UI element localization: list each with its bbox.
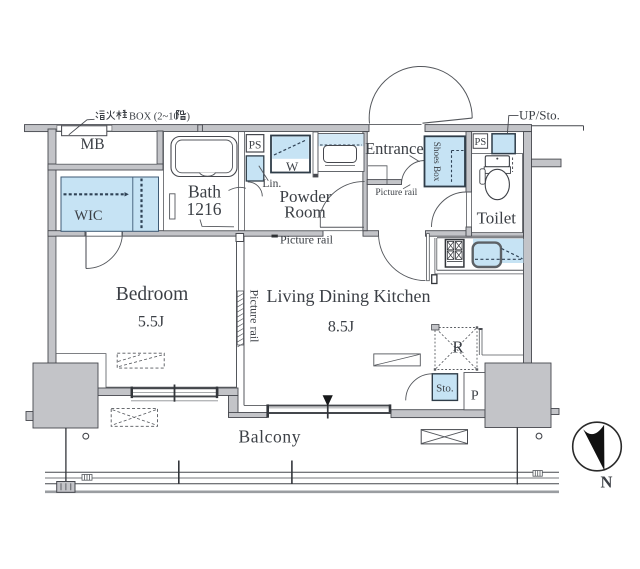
svg-text:1216: 1216	[187, 199, 222, 219]
svg-text:Sto.: Sto.	[436, 383, 454, 395]
svg-text:Picture rail: Picture rail	[280, 233, 334, 247]
svg-text:Shoes Box: Shoes Box	[432, 142, 442, 182]
svg-text:Picture rail: Picture rail	[375, 188, 417, 198]
svg-text:PS: PS	[475, 137, 487, 148]
svg-text:Room: Room	[284, 203, 326, 222]
svg-text:Living Dining Kitchen: Living Dining Kitchen	[267, 286, 431, 306]
svg-text:Lin.: Lin.	[262, 178, 281, 190]
svg-text:BOX (2~10: BOX (2~10	[129, 111, 179, 122]
svg-text:): )	[187, 111, 191, 122]
svg-text:UP/Sto.: UP/Sto.	[519, 108, 560, 123]
svg-text:PS: PS	[249, 140, 262, 152]
svg-text:P: P	[471, 389, 479, 404]
svg-text:Picture rail: Picture rail	[248, 290, 262, 344]
svg-text:MB: MB	[80, 136, 104, 153]
svg-text:5.5J: 5.5J	[138, 314, 164, 331]
svg-text:R: R	[452, 338, 464, 357]
svg-text:N: N	[601, 472, 613, 491]
svg-text:W: W	[286, 159, 299, 174]
svg-text:WIC: WIC	[74, 208, 102, 224]
svg-text:Balcony: Balcony	[239, 426, 302, 446]
svg-text:Toilet: Toilet	[477, 209, 517, 228]
svg-text:8.5J: 8.5J	[328, 319, 354, 336]
svg-text:Bedroom: Bedroom	[116, 284, 189, 305]
svg-text:Entrance: Entrance	[365, 139, 424, 158]
